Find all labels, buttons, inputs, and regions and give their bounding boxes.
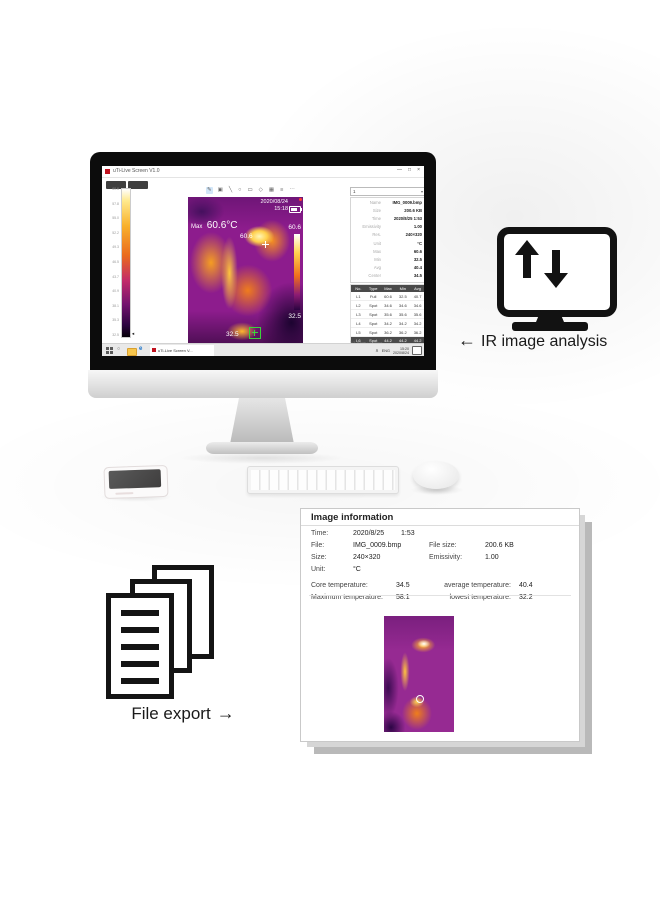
monitor-stand-neck — [230, 398, 294, 444]
property-row: Avg 40.4 — [351, 264, 424, 272]
property-row: Size 200.6 KB — [351, 206, 424, 214]
avg-temp-label: average temperature: — [425, 582, 511, 589]
spot-temp-value: 60.6 — [240, 233, 253, 240]
property-label: Emissivity — [351, 224, 383, 229]
taskbar-app-button[interactable]: uTi-Live Screen V... — [150, 345, 214, 356]
palette-color-bar[interactable] — [121, 188, 131, 338]
hotspot-crosshair-icon — [262, 241, 269, 248]
tool-icon[interactable]: ≡ — [279, 187, 284, 194]
section-divider — [309, 595, 571, 596]
start-button-icon[interactable] — [106, 347, 113, 354]
property-label: Unit — [351, 241, 383, 246]
property-value: IMG_0009.bmp — [383, 200, 424, 205]
taskbar-folder-icon[interactable] — [127, 348, 137, 356]
table-row[interactable]: L2 Spot 34.6 34.6 34.6 — [351, 301, 424, 310]
table-header-cell: No. — [351, 286, 366, 291]
chevron-down-icon: ▾ — [421, 189, 423, 194]
property-row: Min 32.5 — [351, 255, 424, 263]
tool-icon[interactable]: ◇ — [258, 187, 264, 194]
table-row[interactable]: L4 Spot 34.2 34.2 34.2 — [351, 319, 424, 328]
palette-handle-icon[interactable]: ◄ — [131, 331, 135, 336]
property-label: Avg — [351, 265, 383, 270]
table-header-cell: Min — [395, 286, 410, 291]
table-row[interactable]: L1 Full 60.6 32.5 40.7 — [351, 292, 424, 301]
tool-icon[interactable]: ╲ — [228, 187, 233, 194]
property-row: Emissivity 1.00 — [351, 223, 424, 231]
property-label: Time — [351, 216, 383, 221]
taskbar-app-label: uTi-Live Screen V... — [158, 348, 193, 353]
tool-icon[interactable]: ▭ — [246, 187, 253, 194]
mouse — [413, 461, 459, 489]
right-arrow-icon: → — [217, 703, 235, 723]
tool-icon[interactable]: ▦ — [268, 187, 275, 194]
osd-date: 2020/08/24 — [260, 199, 288, 205]
osd-color-scale — [294, 234, 300, 310]
app-window: uTi-Live Screen V1.0 —□× 60.657.855.052.… — [102, 166, 424, 356]
record-dot-icon — [299, 198, 302, 201]
table-header-row: No.TypeMaxMinAvg — [351, 285, 424, 292]
core-temp-label: Core temperature: — [311, 582, 368, 589]
palette-tick: 35.3 — [104, 318, 119, 322]
monitor-chin — [88, 370, 438, 398]
battery-icon — [289, 206, 301, 213]
unit-value: °C — [353, 566, 361, 573]
time-value: 2020/8/25 — [353, 530, 384, 537]
property-label: Center — [351, 273, 383, 278]
upload-arrow-shaft — [523, 254, 531, 278]
unit-label: Unit: — [311, 566, 325, 573]
app-titlebar: uTi-Live Screen V1.0 —□× — [102, 166, 424, 178]
property-row: Center 34.5 — [351, 272, 424, 280]
save-file-button[interactable] — [128, 181, 148, 189]
palette-tick: 43.7 — [104, 275, 119, 279]
palette-tick: 49.3 — [104, 245, 119, 249]
analysis-toolbar: ✎▣╲○▭◇▦≡⋯ — [206, 187, 296, 194]
property-row: Name IMG_0009.bmp — [351, 198, 424, 206]
property-label: Size — [351, 208, 383, 213]
taskbar-browser-icon[interactable]: e — [139, 346, 142, 352]
smartphone-screen — [109, 469, 162, 489]
analysis-table: No.TypeMaxMinAvg L1 Full 60.6 32.5 40.7 … — [350, 284, 424, 345]
osd-scale-max: 60.6 — [288, 224, 301, 231]
max-label: Max — [191, 224, 202, 230]
window-control-button[interactable]: — — [397, 167, 402, 173]
tool-icon[interactable]: ▣ — [217, 187, 224, 194]
thermal-thumbnail — [384, 616, 454, 732]
tool-icon[interactable]: ○ — [237, 187, 242, 194]
taskbar-app-logo-icon — [152, 348, 156, 352]
window-control-button[interactable]: □ — [408, 167, 411, 173]
property-row: Max 60.6 — [351, 247, 424, 255]
time-label: Time: — [311, 530, 328, 537]
file-select-dropdown[interactable]: 1 ▾ — [350, 187, 424, 196]
size-label: Size: — [311, 554, 327, 561]
table-row[interactable]: L5 Spot 36.2 36.2 36.2 — [351, 328, 424, 337]
keyboard — [247, 466, 399, 494]
property-row: Res. 240×320 — [351, 231, 424, 239]
taskbar-search-icon[interactable]: ○ — [117, 346, 120, 352]
download-arrow-icon — [544, 273, 568, 288]
avg-temp-value: 40.4 — [519, 582, 533, 589]
palette-tick: 38.1 — [104, 304, 119, 308]
osd-time: 15:18 — [274, 206, 288, 212]
property-row: Unit °C — [351, 239, 424, 247]
property-label: Name — [351, 200, 383, 205]
tray-clock[interactable]: 15:20 2020/8/24 — [393, 347, 409, 355]
property-value: °C — [383, 241, 424, 246]
palette-tick: 40.9 — [104, 289, 119, 293]
ir-analysis-label: IR image analysis — [481, 333, 607, 350]
table-header-cell: Type — [366, 286, 381, 291]
thermal-image-viewer[interactable]: 2020/08/24 15:18 Max 60.6°C 60.6 60.6 32… — [188, 197, 303, 343]
table-header-cell: Avg — [410, 286, 424, 291]
file-label: File: — [311, 542, 324, 549]
ir-analysis-caption: ←IR image analysis — [458, 330, 607, 351]
palette-tick: 57.8 — [104, 202, 119, 206]
background-shading — [0, 0, 660, 900]
thumbnail-marker-icon — [416, 695, 424, 703]
file-select-value: 1 — [353, 189, 356, 194]
table-header-cell: Max — [381, 286, 396, 291]
property-value: 32.5 — [383, 257, 424, 262]
tray-caret-icon[interactable]: ∧ — [375, 348, 379, 354]
max-value: 60.6°C — [207, 220, 238, 231]
core-temp-value: 34.5 — [396, 582, 410, 589]
palette-tick-labels: 60.657.855.052.249.346.543.740.938.135.3… — [104, 187, 119, 337]
window-control-button[interactable]: × — [417, 167, 420, 173]
window-controls: —□× — [397, 167, 420, 173]
app-logo-icon — [105, 169, 110, 174]
tray-date: 2020/8/24 — [393, 351, 409, 355]
left-arrow-icon: ← — [458, 330, 476, 350]
tool-icon[interactable]: ✎ — [206, 187, 213, 194]
document-icon-front — [106, 593, 174, 699]
emissivity-value: 1.00 — [485, 554, 499, 561]
tool-icon[interactable]: ⋯ — [288, 187, 296, 194]
property-label: Res. — [351, 232, 383, 237]
property-label: Min — [351, 257, 383, 262]
property-value: 1.00 — [383, 224, 424, 229]
palette-tick: 32.5 — [104, 333, 119, 337]
palette-tick: 55.0 — [104, 216, 119, 220]
image-properties-form: Name IMG_0009.bmp Size 200.6 KB Time 202… — [350, 197, 424, 283]
panel-title: Image information — [311, 512, 393, 523]
property-value: 2020/8/25 1:53 — [383, 216, 424, 221]
property-value: 200.6 KB — [383, 208, 424, 213]
property-value: 40.4 — [383, 265, 424, 270]
smartphone — [103, 465, 168, 499]
image-information-panel: Image information Time: 2020/8/25 1:53 F… — [300, 508, 580, 742]
property-row: Time 2020/8/25 1:53 — [351, 214, 424, 222]
marketing-scene: uTi-Live Screen V1.0 —□× 60.657.855.052.… — [0, 0, 660, 900]
keyboard-keys — [251, 470, 395, 490]
property-label: Max — [351, 249, 383, 254]
notification-center-icon[interactable] — [412, 346, 422, 355]
table-body: L1 Full 60.6 32.5 40.7 L2 Spot 34.6 34.6… — [351, 292, 424, 337]
monitor-stand-base — [206, 442, 318, 454]
palette-tick: 52.2 — [104, 231, 119, 235]
property-value: 60.6 — [383, 249, 424, 254]
table-row[interactable]: L3 Spot 35.6 35.6 35.6 — [351, 310, 424, 319]
upload-arrow-icon — [515, 240, 539, 255]
file-export-caption: File export→ — [108, 703, 258, 724]
title-divider — [301, 525, 579, 526]
filesize-value: 200.6 KB — [485, 542, 514, 549]
size-value: 240×320 — [353, 554, 380, 561]
center-crosshair-icon — [249, 327, 261, 339]
system-tray: ∧ ENG 15:20 2020/8/24 — [375, 344, 422, 356]
filesize-label: File size: — [429, 542, 457, 549]
time-extra: 1:53 — [401, 530, 415, 537]
file-export-label: File export — [131, 704, 210, 723]
tray-language-indicator[interactable]: ENG — [382, 349, 390, 353]
emissivity-label: Emissivity: — [429, 554, 462, 561]
download-arrow-shaft — [552, 250, 560, 274]
property-value: 240×320 — [383, 232, 424, 237]
center-temp-value: 32.5 — [226, 331, 239, 338]
smartphone-speaker — [115, 492, 133, 495]
palette-tick: 60.6 — [104, 187, 119, 191]
window-title: uTi-Live Screen V1.0 — [113, 168, 160, 174]
palette-tick: 46.5 — [104, 260, 119, 264]
osd-scale-min: 32.5 — [288, 313, 301, 320]
osd-max-temp: Max 60.6°C — [191, 215, 237, 233]
property-value: 34.5 — [383, 273, 424, 278]
file-value: IMG_0009.bmp — [353, 542, 401, 549]
os-taskbar: ○ e uTi-Live Screen V... ∧ ENG 15:20 202… — [102, 343, 424, 356]
